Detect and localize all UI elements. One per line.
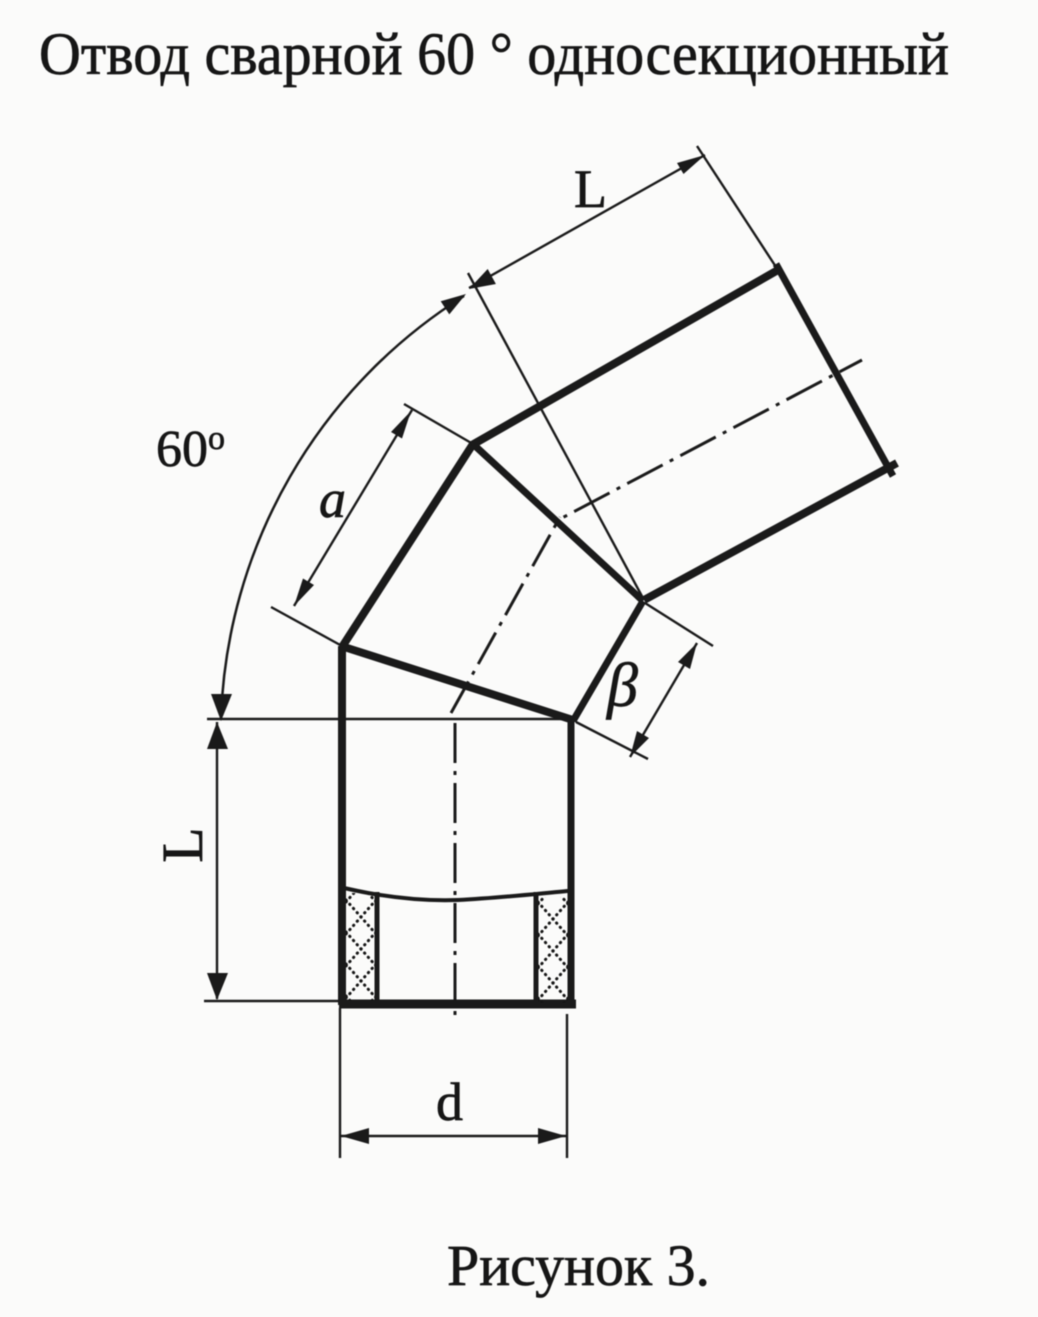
svg-text:L: L	[574, 159, 607, 219]
svg-text:Отвод сварной 60 ° односекцион: Отвод сварной 60 ° односекционный	[39, 21, 949, 87]
svg-text:60o: 60o	[156, 420, 225, 478]
svg-text:β: β	[606, 652, 638, 720]
svg-text:d: d	[436, 1072, 463, 1132]
svg-text:Рисунок 3.: Рисунок 3.	[447, 1233, 710, 1298]
svg-text:a: a	[319, 469, 346, 529]
svg-text:L: L	[150, 827, 215, 862]
